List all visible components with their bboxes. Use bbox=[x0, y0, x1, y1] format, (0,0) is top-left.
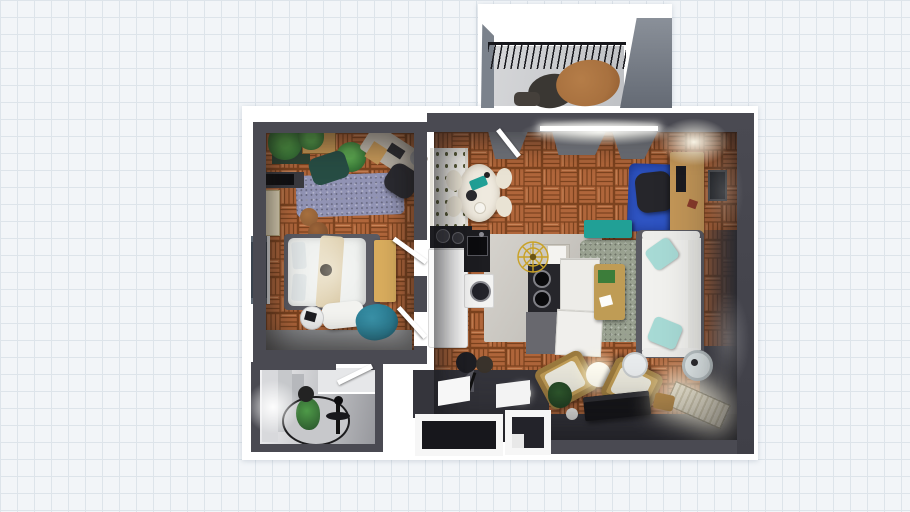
office-chair[interactable] bbox=[634, 170, 674, 214]
window-strip bbox=[540, 126, 658, 131]
living-wall-bottom bbox=[548, 440, 737, 454]
entry-door-leaf-right[interactable] bbox=[496, 380, 530, 408]
monitor-icon bbox=[676, 166, 686, 192]
floor-plant[interactable] bbox=[548, 382, 572, 408]
fan-lamp-head bbox=[334, 396, 343, 405]
entry-door-chip bbox=[512, 434, 524, 448]
drum-lamp[interactable] bbox=[682, 350, 713, 381]
bathroom-wall-right bbox=[375, 362, 383, 452]
floor-lamp-bronze-shade[interactable] bbox=[476, 356, 493, 373]
balcony-floor-cushion[interactable] bbox=[514, 92, 540, 106]
bedroom-wall-right-c bbox=[414, 346, 427, 364]
floor-shadow-right-of-sofa bbox=[703, 230, 737, 352]
coffee-table-plant bbox=[598, 270, 615, 283]
bedroom-wall-left bbox=[253, 122, 266, 364]
entry-door-frame-left[interactable] bbox=[415, 414, 503, 456]
sofa-armrest-top bbox=[642, 231, 700, 240]
floorplan-canvas[interactable] bbox=[0, 0, 910, 512]
bed-pillow-2 bbox=[291, 274, 307, 302]
drum-lamp-center bbox=[691, 359, 698, 366]
tv-bench-teal[interactable] bbox=[584, 220, 632, 238]
bathroom-wall-left bbox=[251, 362, 260, 452]
floor-lamp-black-shade[interactable] bbox=[456, 352, 477, 373]
living-wall-right bbox=[737, 113, 754, 454]
bathroom-wall-disc bbox=[298, 386, 314, 402]
faucet-icon bbox=[479, 232, 484, 237]
bed-pillow-1 bbox=[291, 242, 307, 270]
side-table-round[interactable] bbox=[622, 352, 648, 378]
office-desk[interactable] bbox=[670, 152, 704, 234]
bathroom-wall-bottom bbox=[251, 444, 383, 452]
bedroom-wall-right-a bbox=[414, 122, 427, 240]
bedroom-wall-top bbox=[253, 122, 427, 133]
fridge[interactable] bbox=[428, 248, 468, 348]
small-deco-ball bbox=[566, 408, 578, 420]
bathroom-wall-top-a bbox=[251, 362, 336, 370]
dining-plate bbox=[474, 202, 486, 214]
sofa-backrest bbox=[688, 238, 701, 350]
bathroom-plant[interactable] bbox=[296, 398, 320, 430]
pot-icon-2 bbox=[452, 232, 464, 244]
fan-lamp-blades bbox=[326, 412, 350, 420]
pot-icon-1 bbox=[436, 229, 450, 243]
washer-drum-icon bbox=[470, 281, 491, 302]
bed-foot-bench[interactable] bbox=[374, 240, 396, 302]
entry-door-frame-right[interactable] bbox=[505, 410, 551, 455]
pendant-chandelier[interactable] bbox=[514, 238, 552, 276]
sink-basin bbox=[467, 236, 488, 256]
bathroom-partition-1 bbox=[262, 370, 278, 442]
bedroom-wall-right-b bbox=[414, 276, 427, 312]
dining-pot bbox=[466, 190, 477, 201]
cat-on-bed[interactable] bbox=[320, 264, 332, 276]
picture-frame bbox=[708, 170, 727, 201]
dining-cup bbox=[484, 172, 490, 178]
burner-icon-2 bbox=[533, 290, 551, 308]
